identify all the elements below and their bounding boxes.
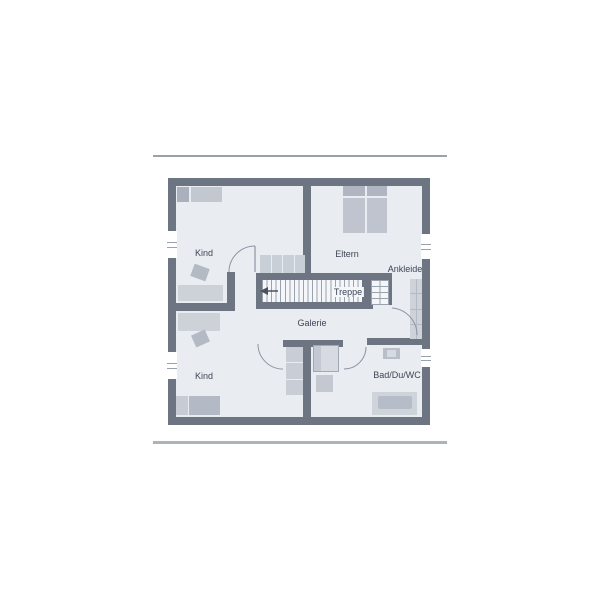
bed-child-bottom-pillow: [176, 396, 188, 415]
room-label-kind-top: Kind: [195, 248, 213, 258]
room-label-treppe: Treppe: [332, 287, 364, 297]
bed-parents-pillow-left: [343, 186, 365, 196]
window-bad-right: [421, 349, 431, 367]
desk-child-bottom: [178, 313, 220, 331]
wall-stairs-bottom: [256, 302, 373, 309]
shower: [313, 345, 339, 372]
roof-line-top: [153, 155, 447, 157]
room-label-galerie: Galerie: [297, 318, 326, 328]
bed-child-top-pillow: [177, 187, 189, 202]
stair-tread: [272, 255, 283, 273]
stairs-upper-treads: [260, 255, 305, 273]
toilet: [383, 348, 400, 359]
wall-kind-bad-divider: [303, 345, 311, 417]
bed-child-top-mattress: [191, 187, 222, 202]
window-kind-top-left: [167, 231, 177, 258]
room-label-bad: Bad/Du/WC: [373, 370, 421, 380]
room-label-ankleide: Ankleide: [388, 264, 423, 274]
bathtub: [372, 392, 417, 415]
window-kind-bottom-left: [167, 352, 177, 379]
wardrobe-ankleide: [410, 279, 422, 339]
wall-stairs-top: [256, 273, 392, 280]
wall-kind-kind-divider: [176, 303, 235, 311]
bed-parents-pillow-right: [367, 186, 387, 196]
stair-tread: [283, 255, 294, 273]
room-label-kind-bottom: Kind: [195, 371, 213, 381]
stairs-winders: [371, 280, 389, 305]
bed-child-bottom-mattress: [189, 396, 220, 415]
roof-line-bottom: [153, 441, 447, 444]
bed-parents-mattress-right: [367, 198, 387, 233]
floor-plan-canvas: Kind Eltern Ankleide Treppe Galerie Kind…: [0, 0, 600, 600]
room-label-eltern: Eltern: [335, 249, 359, 259]
bed-parents-mattress-left: [343, 198, 365, 233]
wall-bad-north: [367, 338, 430, 345]
washbasin: [316, 375, 333, 392]
stair-tread: [260, 255, 271, 273]
desk-child-top: [178, 285, 223, 301]
wardrobe-child-bottom: [286, 347, 303, 395]
stair-tread: [295, 255, 306, 273]
window-eltern-right: [421, 234, 431, 259]
